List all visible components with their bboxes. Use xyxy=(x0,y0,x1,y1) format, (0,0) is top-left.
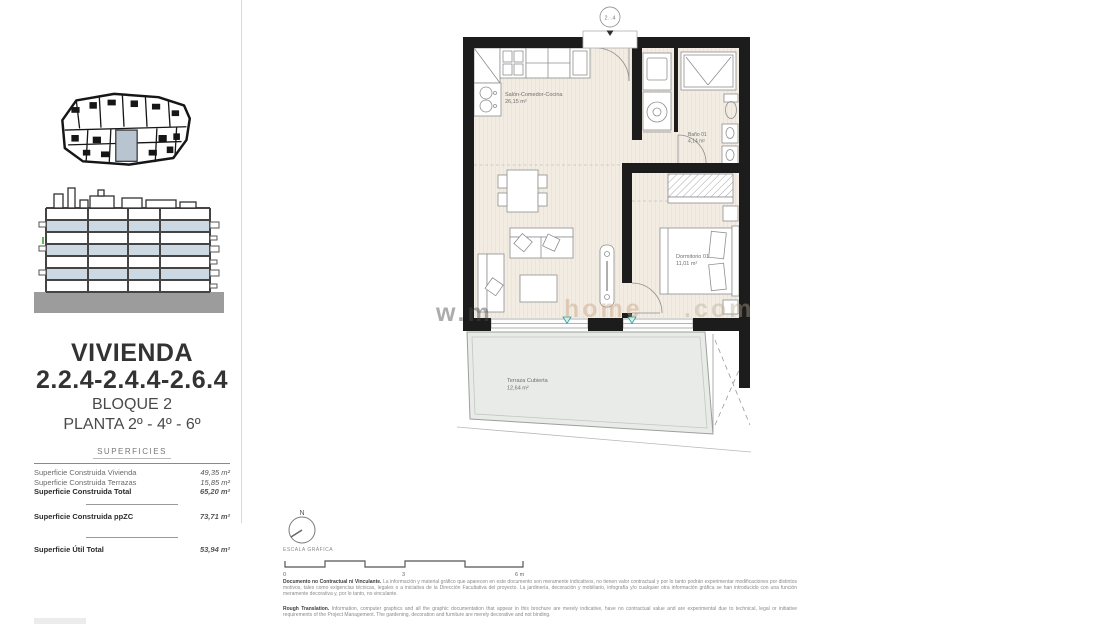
north-label: N xyxy=(299,510,304,517)
scale-caption: ESCALA GRÁFICA xyxy=(283,546,333,553)
table-divider xyxy=(86,504,178,505)
room-label-dormitorio: Dormitorio 01 xyxy=(676,254,709,260)
row-value: 15,85 m² xyxy=(200,478,230,488)
room-area-terraza: 12,64 m² xyxy=(507,386,529,392)
table-row-util: Superficie Útil Total 53,94 m² xyxy=(34,545,230,555)
building-elevation xyxy=(28,180,230,316)
row-label: Superficie Construida Terrazas xyxy=(34,478,136,488)
compass-needle xyxy=(291,530,302,537)
floor-plan: 2.·.4 Salón-Comedor-Cocina 26,15 m² Baño… xyxy=(455,0,765,460)
table-row: Superficie Construida Vivienda 49,35 m² xyxy=(34,468,230,478)
disclaimer-es: Documento no Contractual ni Vinculante. … xyxy=(283,579,797,597)
table-row-total: Superficie Construida Total 65,20 m² xyxy=(34,487,230,497)
nightstand xyxy=(723,300,738,314)
corner-artifact xyxy=(34,618,86,624)
bed xyxy=(660,226,739,296)
floor-subtitle: PLANTA 2º - 4º - 6º xyxy=(34,416,230,434)
room-area-salon: 26,15 m² xyxy=(505,99,527,105)
row-value: 53,94 m² xyxy=(200,545,230,555)
nightstand xyxy=(723,206,738,221)
row-value: 65,20 m² xyxy=(200,487,230,497)
room-label-bano: Baño 01 xyxy=(688,132,707,138)
unit-numbers: 2.2.4-2.4.4-2.6.4 xyxy=(34,367,230,394)
areas-table-header: SUPERFICIES xyxy=(34,447,230,456)
table-row: Superficie Construida Terrazas 15,85 m² xyxy=(34,478,230,488)
highlighted-unit xyxy=(116,130,137,161)
room-area-dormitorio: 11,01 m² xyxy=(676,261,697,267)
coffee-table xyxy=(520,275,557,302)
unit-title: VIVIENDA xyxy=(34,340,230,367)
areas-table: Superficie Construida Vivienda 49,35 m² … xyxy=(34,463,230,555)
room-label-salon: Salón-Comedor-Cocina xyxy=(505,92,563,98)
entrance-landing: 2.·.4 xyxy=(583,7,637,48)
room-label-terraza: Terraza Cubierta xyxy=(507,378,549,384)
disclaimer-en: Rough Translation. Information, computer… xyxy=(283,606,797,618)
row-label: Superficie Construida Total xyxy=(34,487,131,497)
laundry-closet xyxy=(643,53,671,132)
terrace xyxy=(457,332,751,452)
scale-bar xyxy=(285,561,523,567)
table-divider xyxy=(86,537,178,538)
site-key-plan xyxy=(50,88,198,182)
scale-tick-0: 0 xyxy=(283,572,286,578)
footer-disclaimers: Documento no Contractual ni Vinculante. … xyxy=(283,579,797,618)
title-block: VIVIENDA 2.2.4-2.4.4-2.6.4 BLOQUE 2 PLAN… xyxy=(34,340,230,555)
shower xyxy=(681,52,736,90)
row-label: Superficie Útil Total xyxy=(34,545,104,555)
row-value: 49,35 m² xyxy=(200,468,230,478)
row-label: Superficie Construida ppZC xyxy=(34,512,133,522)
row-value: 73,71 m² xyxy=(200,512,230,522)
compass-and-scale: N ESCALA GRÁFICA 0 3 6 m xyxy=(273,503,535,583)
sidebar-divider xyxy=(241,0,242,523)
room-area-bano: 4,14 m² xyxy=(688,139,705,145)
disclaimer-en-body: Information, computer graphics and all t… xyxy=(283,606,797,618)
block-subtitle: BLOQUE 2 xyxy=(34,396,230,414)
scale-tick-6m: 6 m xyxy=(515,572,525,578)
table-row-ppzc: Superficie Construida ppZC 73,71 m² xyxy=(34,512,230,522)
scale-tick-3: 3 xyxy=(402,572,405,578)
sliding-panel xyxy=(600,245,614,307)
wardrobe xyxy=(668,174,733,203)
unit-badge-label: 2.·.4 xyxy=(604,16,615,22)
areas-header-underline xyxy=(93,458,171,459)
row-label: Superficie Construida Vivienda xyxy=(34,468,136,478)
